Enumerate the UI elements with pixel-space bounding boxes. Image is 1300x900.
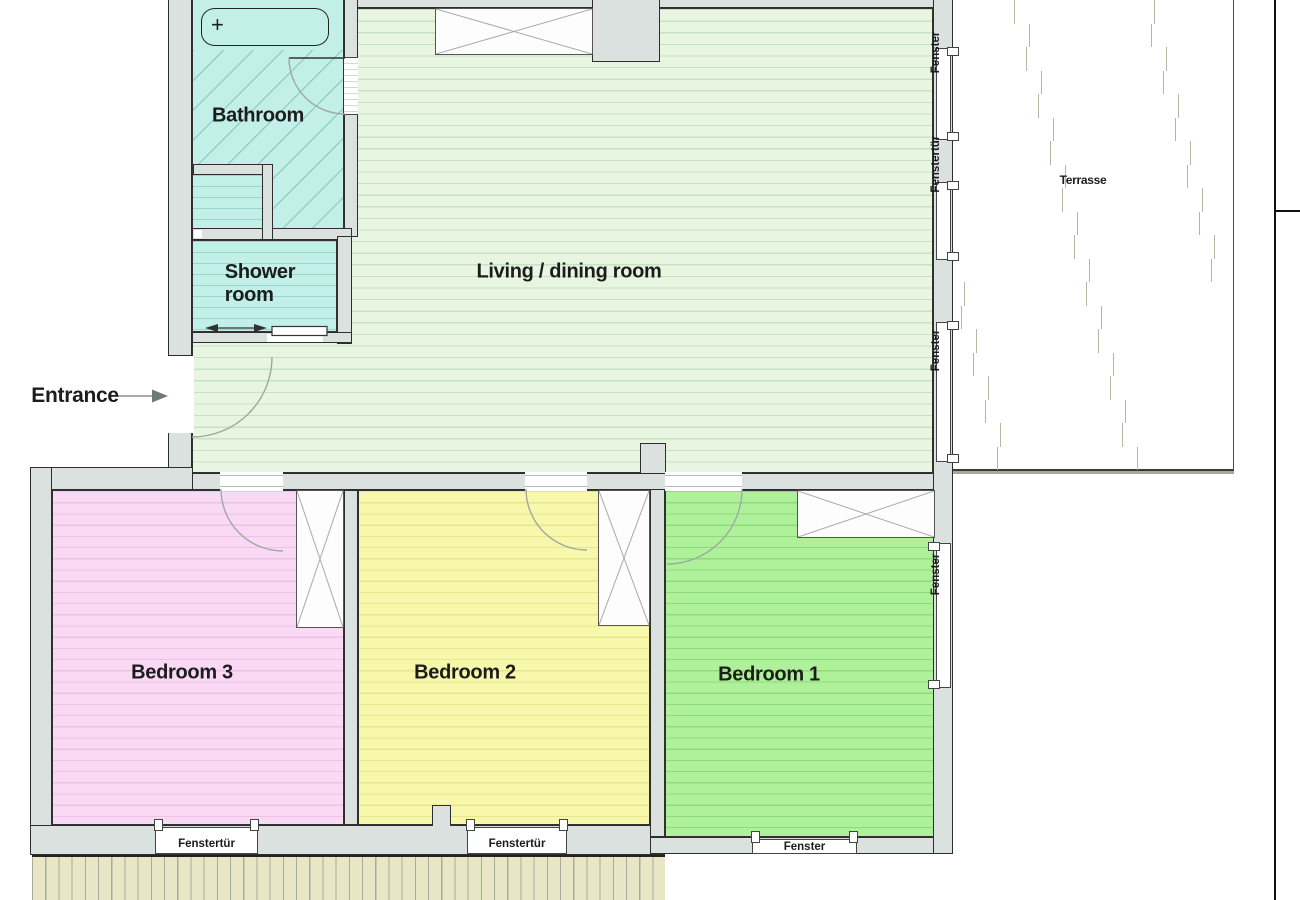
- window-label: Fenster: [784, 841, 826, 853]
- wardrobe-bedroom1-icon: [797, 490, 935, 538]
- adjacent-plan-edge-vertical: [1274, 0, 1276, 900]
- bathtub-icon: +: [201, 8, 329, 46]
- window-label: Fenstertür: [489, 838, 546, 850]
- terrace-plank-joint: [1214, 235, 1215, 259]
- terrace-plank-joint: [1062, 188, 1063, 212]
- window-label: Fenster: [930, 553, 942, 595]
- terrace-plank-joint: [1166, 47, 1167, 71]
- terrace-plank-joint: [988, 376, 989, 400]
- window-fenstertuer-bedroom3: Fenstertür: [155, 827, 258, 854]
- terrace-plank-joint: [1125, 400, 1126, 424]
- floor-plan: + Fenster Fenstertür Fenster Fenster F: [0, 0, 1300, 900]
- divider-gap: [194, 230, 202, 238]
- terrace-plank-joint: [976, 329, 977, 353]
- terrace-plank-joint: [1029, 24, 1030, 48]
- wall-pillar-lower: [640, 443, 666, 475]
- terrace-plank-joint: [997, 447, 998, 471]
- terrace-plank-joint: [1175, 118, 1176, 142]
- window-fenster-terrace-2: Fenster: [936, 322, 951, 462]
- wall-pillar-top: [592, 0, 660, 62]
- terrace-plank-joint: [1077, 212, 1078, 236]
- wall-left-mid: [168, 432, 192, 469]
- wall-shower-right: [337, 236, 352, 344]
- wall-shower-cabin-top: [193, 164, 265, 175]
- terrace-plank-joint: [1086, 282, 1087, 306]
- terrace-floor: [953, 0, 1234, 471]
- terrace-plank-joint: [1178, 94, 1179, 118]
- entrance-label: Entrance: [31, 384, 118, 408]
- terrace-plank-joint: [1211, 259, 1212, 283]
- shower-room-label: Shower room: [225, 261, 295, 307]
- wardrobe-bedroom3-icon: [296, 490, 344, 628]
- bedroom1-door-opening: [665, 472, 742, 491]
- bedroom3-door-opening: [220, 472, 283, 491]
- bedroom1-label: Bedroom 1: [718, 664, 820, 687]
- terrace-plank-joint: [961, 306, 962, 330]
- window-label: Fenster: [930, 330, 942, 372]
- bathroom-label: Bathroom: [212, 105, 304, 128]
- wall-bed3-bed2: [344, 490, 358, 825]
- terrace-plank-joint: [1202, 188, 1203, 212]
- terrace-plank-joint: [1053, 118, 1054, 142]
- terrace-plank-joint: [1199, 212, 1200, 236]
- shower-cabin-floor: [193, 175, 262, 230]
- wardrobe-bedroom2-icon: [598, 490, 650, 626]
- window-label: Fenstertür: [178, 838, 235, 850]
- entrance-opening: [166, 356, 194, 433]
- terrace-plank-joint: [1122, 423, 1123, 447]
- wall-bed2-notch: [432, 805, 451, 826]
- terrace-plank-joint: [1038, 94, 1039, 118]
- terrace-plank-joint: [1110, 376, 1111, 400]
- wardrobe-living-icon: [435, 8, 593, 55]
- bedroom3-label: Bedroom 3: [131, 662, 233, 685]
- window-fenster-bedroom1-right: Fenster: [936, 543, 951, 688]
- window-label: Fenstertür: [930, 136, 942, 193]
- terrace-plank-joint: [1187, 165, 1188, 189]
- wall-bathroom-right: [344, 0, 358, 237]
- terrace-shadow: [953, 471, 1234, 474]
- terrace-plank-joint: [1101, 306, 1102, 330]
- window-fenstertuer-terrace: Fenstertür: [936, 182, 951, 260]
- bathroom-door-opening: [344, 57, 358, 115]
- wall-left-lower: [30, 467, 52, 855]
- terrace-plank-joint: [1154, 0, 1155, 24]
- terrace-plank-joint: [1098, 329, 1099, 353]
- wall-left-upper: [168, 0, 192, 356]
- terrace-plank-joint: [1163, 71, 1164, 95]
- wall-step: [30, 467, 193, 490]
- wall-shower-cabin-right: [262, 164, 273, 240]
- living-room-label: Living / dining room: [476, 261, 661, 284]
- terrace-label: Terrasse: [1060, 173, 1107, 187]
- terrace-plank-joint: [1026, 47, 1027, 71]
- adjacent-plan-edge-horizontal: [1274, 210, 1300, 212]
- terrace-plank-joint: [1041, 71, 1042, 95]
- terrace-plank-joint: [985, 400, 986, 424]
- window-fenster-bedroom1-bottom: Fenster: [752, 839, 857, 854]
- wall-bed2-bed1: [650, 473, 665, 837]
- terrace-plank-joint: [1089, 259, 1090, 283]
- terrace-plank-joint: [973, 353, 974, 377]
- wall-bottom: [30, 825, 665, 855]
- terrace-plank-joint: [1137, 447, 1138, 471]
- shower-sliding-door-opening: [267, 334, 323, 342]
- terrace-plank-joint: [1151, 24, 1152, 48]
- terrace-plank-joint: [1074, 235, 1075, 259]
- bedroom2-label: Bedroom 2: [414, 662, 516, 685]
- terrace-plank-joint: [964, 282, 965, 306]
- tap-icon: +: [211, 12, 224, 38]
- balcony-strip: [32, 855, 665, 900]
- terrace-plank-joint: [1113, 353, 1114, 377]
- bedroom2-door-opening: [525, 472, 587, 491]
- terrace-plank-joint: [1190, 141, 1191, 165]
- window-fenster-terrace-1: Fenster: [936, 48, 951, 140]
- terrace-plank-joint: [1014, 0, 1015, 24]
- window-fenstertuer-bedroom2: Fenstertür: [467, 827, 567, 854]
- terrace-plank-joint: [1050, 141, 1051, 165]
- terrace-plank-joint: [1000, 423, 1001, 447]
- window-label: Fenster: [930, 32, 942, 74]
